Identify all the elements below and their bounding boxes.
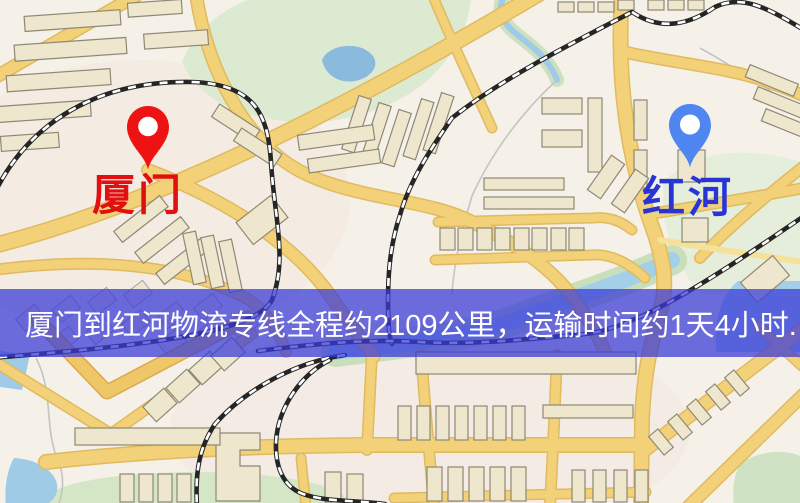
origin-label: 厦门 [92, 175, 184, 218]
destination-label: 红河 [642, 177, 734, 220]
pin-shape [669, 104, 711, 168]
pin-hole [138, 117, 158, 137]
logistics-map: 厦门 红河 厦门到红河物流专线全程约2109公里，运输时间约1天4小时. [0, 0, 800, 503]
origin-pin-icon [126, 105, 170, 171]
pin-shape [127, 106, 169, 170]
route-info-banner: 厦门到红河物流专线全程约2109公里，运输时间约1天4小时. [0, 289, 800, 357]
map-image [0, 0, 800, 503]
route-info-text: 厦门到红河物流专线全程约2109公里，运输时间约1天4小时. [0, 302, 797, 344]
destination-pin-icon [668, 103, 712, 169]
pin-hole [680, 115, 700, 135]
